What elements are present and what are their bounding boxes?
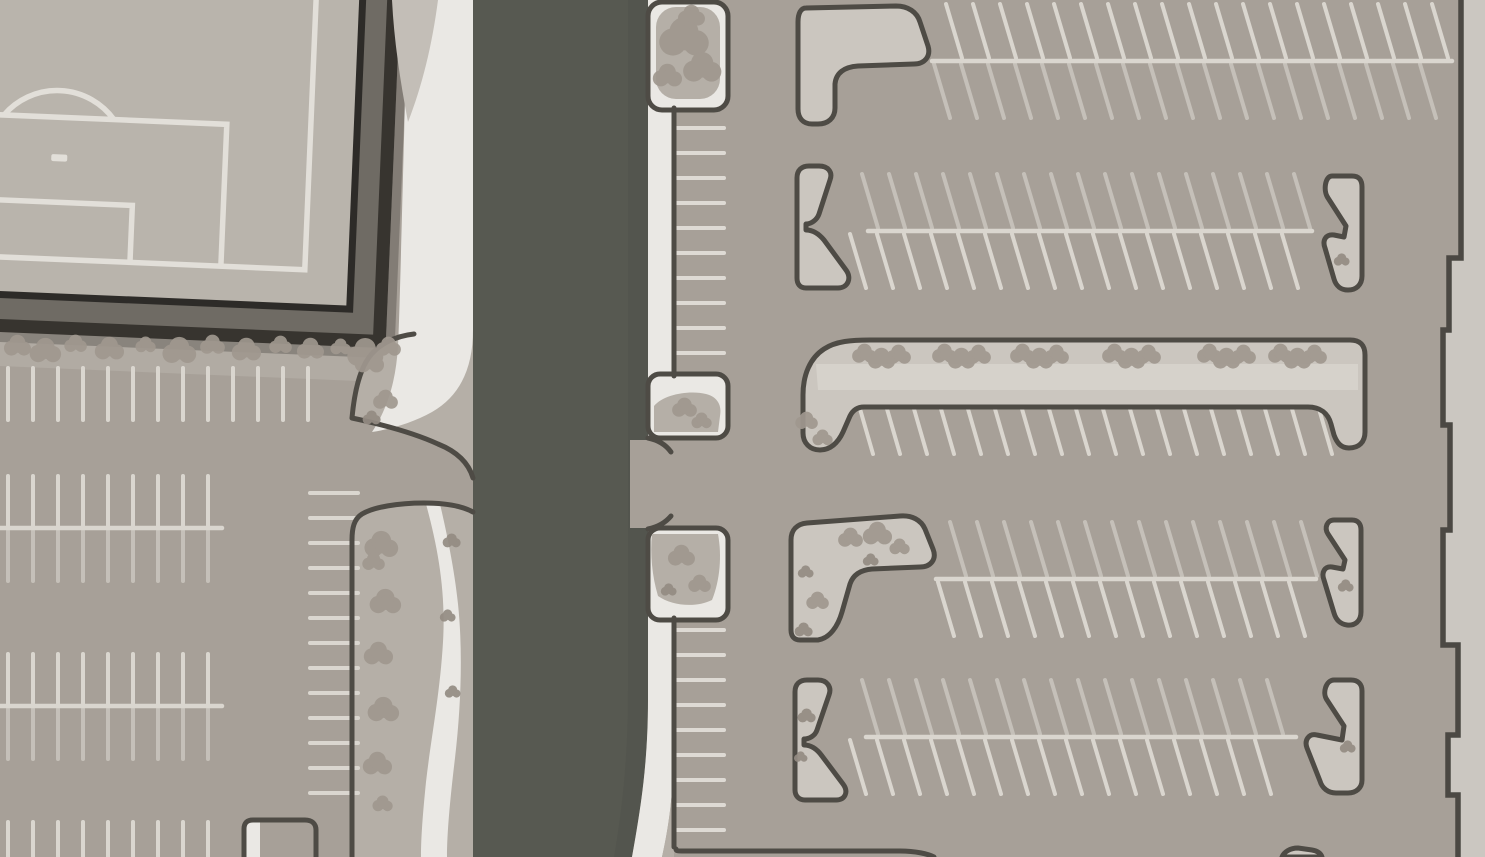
- site-plan-map[interactable]: [0, 0, 1485, 857]
- island-row2-east: [1324, 176, 1362, 290]
- sports-field: [0, 0, 420, 383]
- pitch-penalty-spot: [51, 154, 67, 162]
- driveway-east: [630, 440, 734, 528]
- island-bottom-hint: [1282, 848, 1322, 857]
- walkway-south: [246, 820, 260, 857]
- island-row3-path-band: [816, 364, 1358, 390]
- pocket-south-planting: [651, 534, 720, 605]
- map-canvas[interactable]: [0, 0, 1485, 857]
- road: [473, 0, 648, 857]
